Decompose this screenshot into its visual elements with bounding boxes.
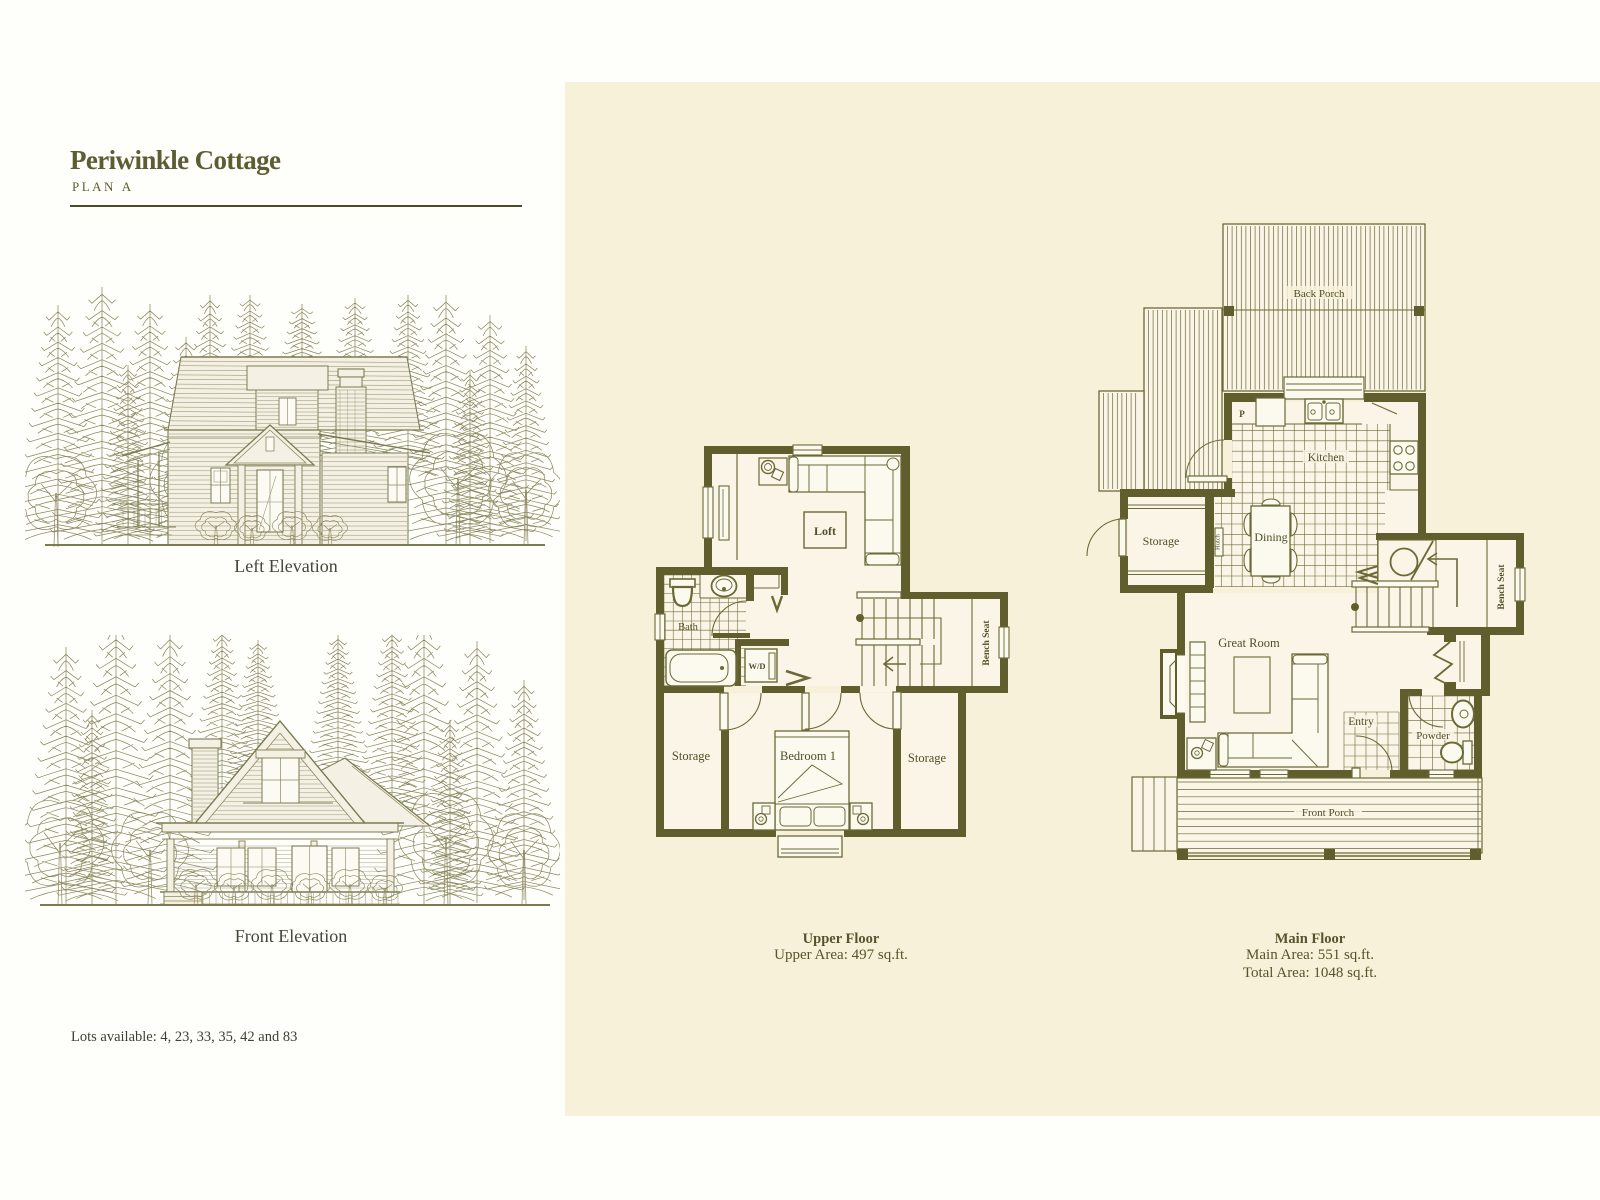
svg-text:Back Porch: Back Porch xyxy=(1293,288,1345,300)
svg-text:Entry: Entry xyxy=(1348,716,1374,728)
svg-text:Bath: Bath xyxy=(678,622,699,633)
svg-text:Storage: Storage xyxy=(908,751,947,765)
svg-text:W/D: W/D xyxy=(749,661,766,671)
svg-text:Powder: Powder xyxy=(1416,730,1450,742)
svg-text:P: P xyxy=(1239,409,1245,419)
svg-text:Storage: Storage xyxy=(672,749,711,763)
svg-text:Dining: Dining xyxy=(1254,530,1287,544)
svg-text:Bench Seat: Bench Seat xyxy=(1497,564,1507,610)
svg-text:Great Room: Great Room xyxy=(1218,636,1280,650)
svg-text:Bench Seat: Bench Seat xyxy=(982,620,992,666)
svg-text:Loft: Loft xyxy=(814,524,836,538)
svg-text:Front Porch: Front Porch xyxy=(1302,807,1355,819)
svg-text:Storage: Storage xyxy=(1143,534,1180,548)
svg-text:Kitchen: Kitchen xyxy=(1308,452,1345,464)
svg-text:Hutch: Hutch xyxy=(1215,533,1222,550)
svg-text:Bedroom 1: Bedroom 1 xyxy=(780,749,836,763)
